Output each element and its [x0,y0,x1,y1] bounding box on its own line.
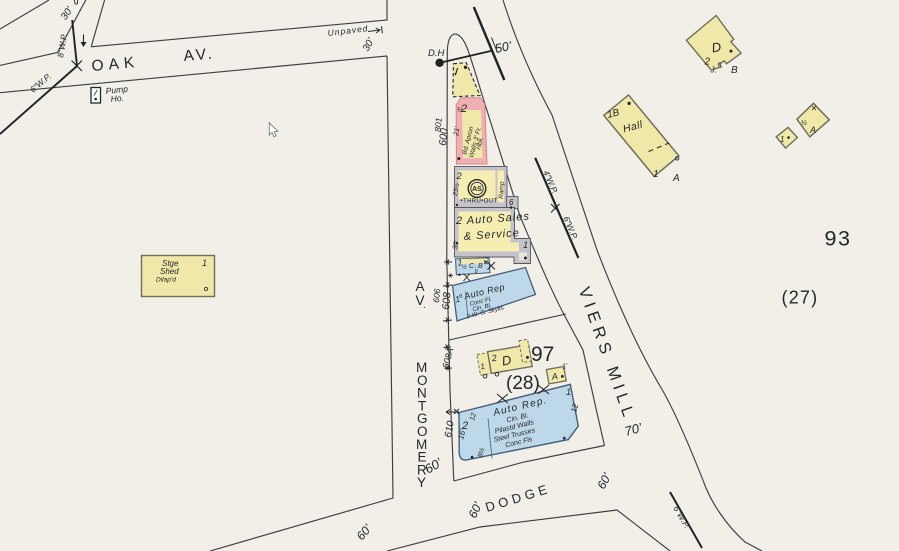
svg-text:6: 6 [509,198,514,207]
svg-text:D.H: D.H [428,48,445,59]
svg-text:½: ½ [801,119,807,127]
svg-text:600: 600 [437,128,450,147]
svg-text:J.: J. [710,66,717,75]
svg-text:(28): (28) [506,373,540,394]
svg-text:2: 2 [456,171,463,182]
svg-text:97: 97 [531,343,554,366]
svg-text:93: 93 [825,227,852,251]
svg-text:Dilap’d: Dilap’d [156,277,176,284]
svg-text:1: 1 [202,258,207,268]
svg-text:2: 2 [455,215,462,227]
svg-text:B: B [731,65,738,76]
svg-text:608: 608 [440,292,453,311]
svg-text:2: 2 [460,103,467,115]
svg-text:1: 1 [780,135,784,144]
svg-text:9: 9 [475,269,478,275]
svg-text:Y: Y [417,475,426,490]
svg-text:Ho.: Ho. [110,93,124,104]
svg-text:A: A [672,173,680,184]
svg-text:1: 1 [653,169,659,180]
svg-text:1: 1 [523,240,528,250]
svg-text:•THRU•OUT: •THRU•OUT [461,199,498,205]
svg-text:AV.: AV. [183,45,216,65]
svg-text:A: A [416,279,425,294]
svg-text:(27): (27) [782,288,819,308]
svg-text:1: 1 [566,387,571,397]
svg-text:AS: AS [472,186,482,193]
svg-text:2: 2 [704,57,711,68]
svg-text:A: A [809,125,816,135]
svg-text:Shed: Shed [160,267,179,276]
svg-text:½: ½ [462,264,467,271]
svg-text:.: . [423,300,426,311]
svg-text:Ramp: Ramp [498,181,506,199]
